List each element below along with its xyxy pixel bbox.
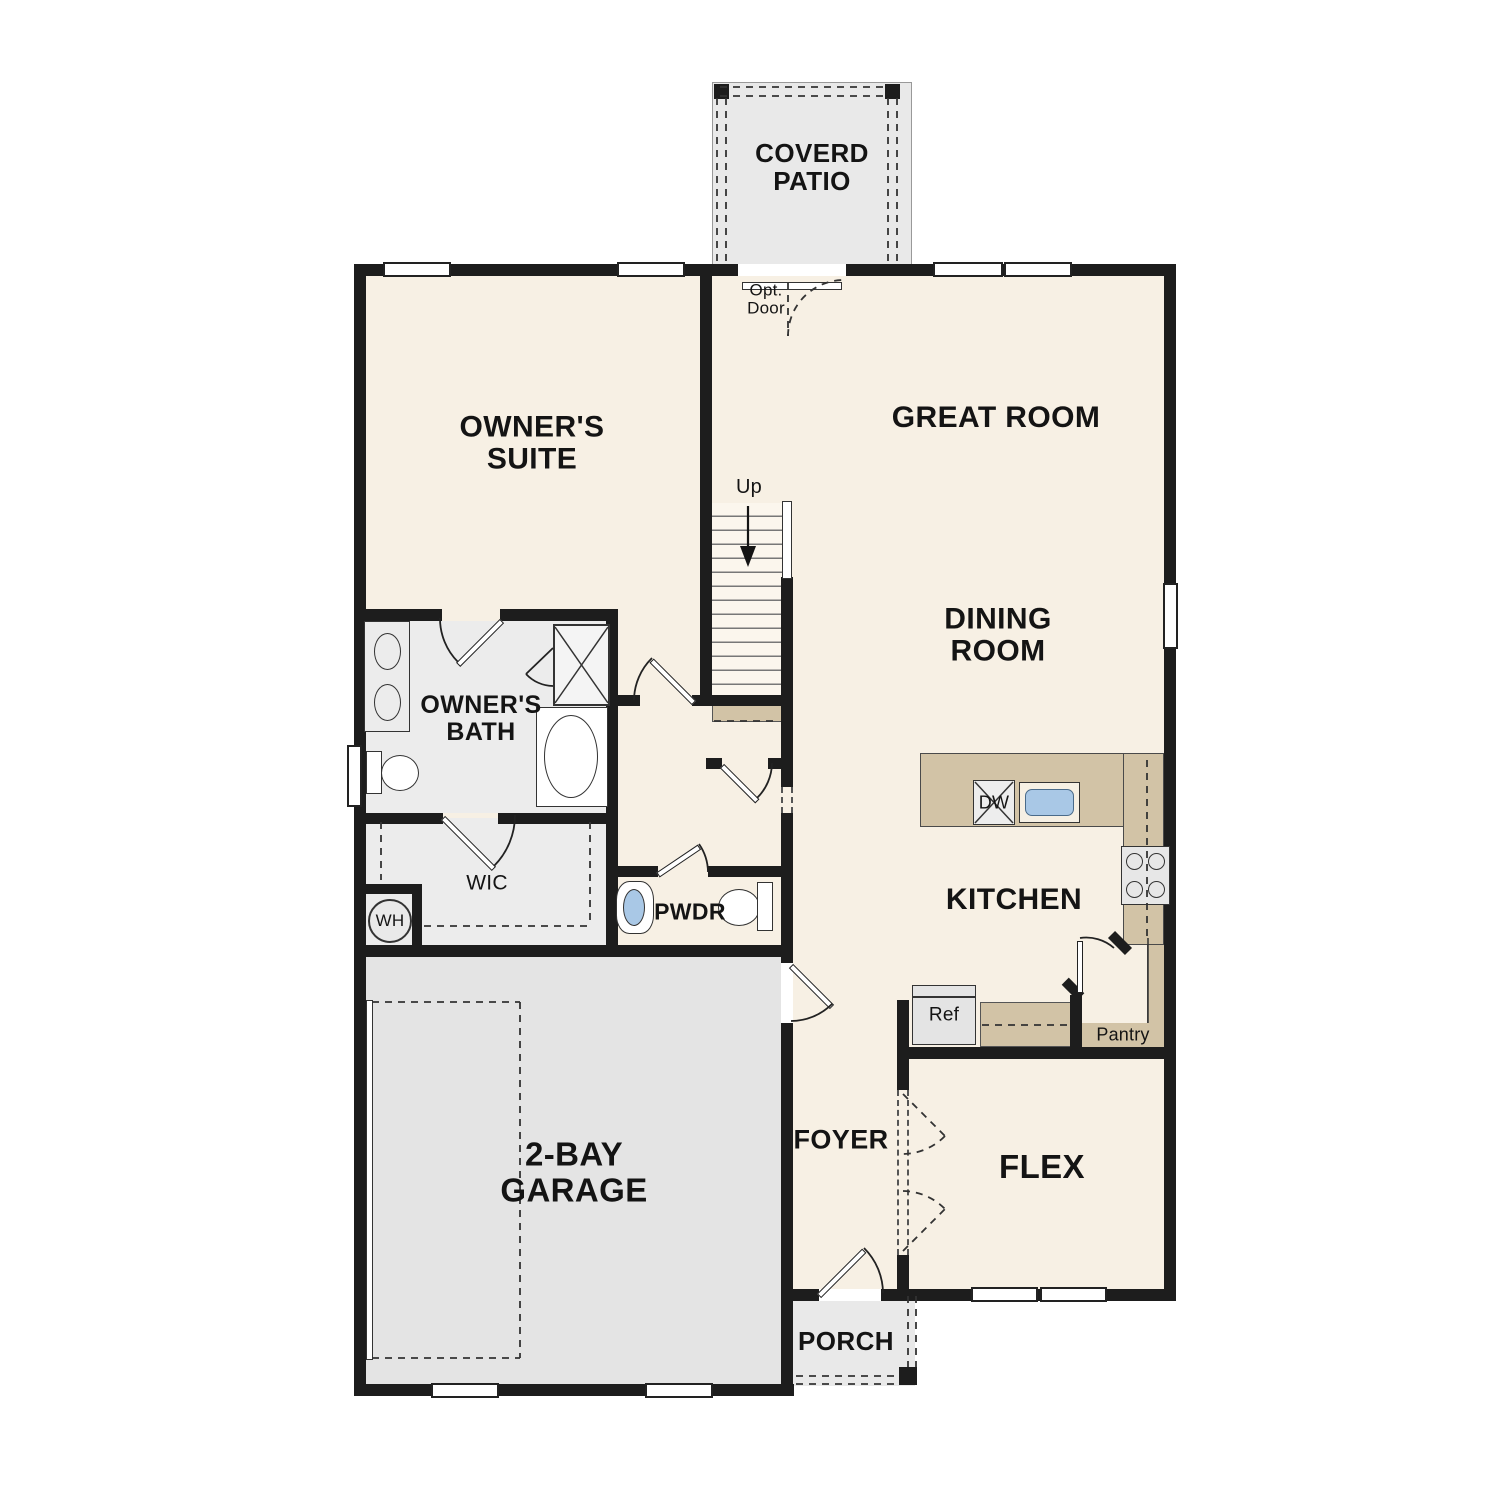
label-owners-suite: OWNER'S SUITE [460, 412, 605, 477]
garage-entry-door-arc [791, 1004, 832, 1021]
wic-door-arc [494, 815, 515, 866]
bath-door-arc [440, 618, 458, 662]
label-flex: FLEX [999, 1149, 1085, 1185]
label-wic: WIC [466, 873, 507, 896]
label-pwdr: PWDR [654, 900, 726, 925]
opt-door-arc-dashed [788, 280, 844, 336]
label-pantry: Pantry [1096, 1025, 1149, 1044]
label-foyer: FOYER [793, 1125, 888, 1154]
shower-door-arc [526, 674, 553, 686]
label-owners-bath: OWNER'S BATH [420, 692, 541, 746]
flex-double-door-lower-arc [903, 1191, 945, 1209]
pantry-door-arc [1080, 938, 1114, 948]
suite-nook-door-arc [634, 658, 652, 700]
flex-double-door-upper-leaf [903, 1094, 945, 1136]
label-great-room: GREAT ROOM [892, 402, 1100, 434]
label-up: Up [736, 477, 762, 499]
stair-up-arrow-head [740, 546, 756, 567]
flex-double-door-lower-leaf [903, 1209, 945, 1251]
label-ref: Ref [929, 1006, 959, 1027]
label-wh: WH [376, 912, 405, 930]
label-dw: DW [979, 793, 1009, 812]
label-opt-door: Opt. Door [747, 282, 785, 319]
label-dining-room: DINING ROOM [944, 604, 1051, 669]
linework-layer [0, 0, 1500, 1500]
shower-door-leaf [526, 648, 553, 674]
floorplan-canvas: COVERD PATIO Opt. Door OWNER'S SUITE GRE… [0, 0, 1500, 1500]
flex-double-door-upper-arc [903, 1136, 945, 1154]
pwdr-door-arc [699, 844, 708, 872]
label-covered-patio: COVERD PATIO [755, 139, 869, 195]
understair-closet-door-arc [757, 763, 772, 798]
label-kitchen: KITCHEN [946, 884, 1082, 916]
front-door-arc [864, 1248, 883, 1293]
label-porch: PORCH [798, 1327, 894, 1355]
label-garage: 2-BAY GARAGE [500, 1136, 647, 1207]
